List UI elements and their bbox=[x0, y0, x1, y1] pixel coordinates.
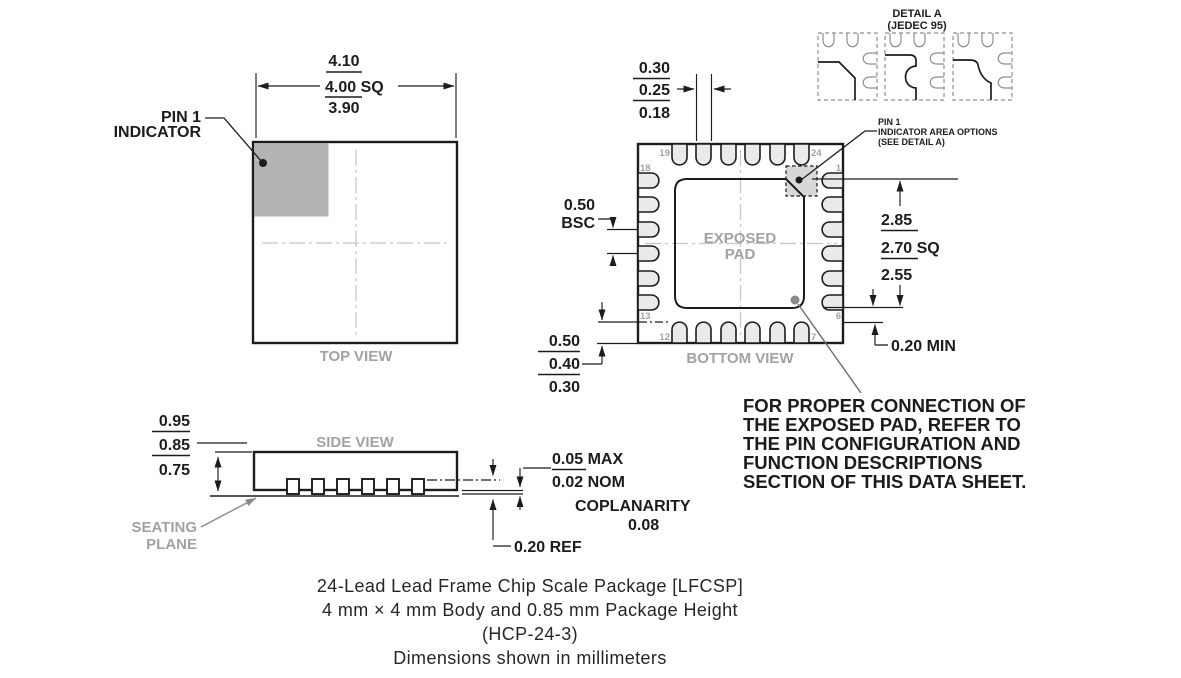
body-dim-min: 3.90 bbox=[328, 100, 359, 117]
pad-dim-min: 2.55 bbox=[881, 267, 912, 284]
bottom-view: EXPOSED PAD 19 24 18 1 13 6 12 7 BOTTOM … bbox=[538, 60, 998, 396]
lead-outline bbox=[958, 33, 969, 47]
detail-a-option-3 bbox=[953, 33, 1012, 100]
pad-dim-nom: 2.70 SQ bbox=[881, 240, 940, 257]
chamfer-corner-option bbox=[818, 62, 855, 100]
detail-a: DETAIL A (JEDEC 95) bbox=[818, 8, 1012, 100]
height-dimension: 0.95 0.85 0.75 bbox=[152, 413, 252, 491]
side-view: SIDE VIEW 0.95 0.85 0.75 SEATI bbox=[131, 413, 690, 556]
height-max: 0.95 bbox=[159, 413, 190, 430]
side-view-label: SIDE VIEW bbox=[316, 434, 394, 451]
lead-outline bbox=[914, 33, 925, 47]
pitch-dimension: 0.50 BSC bbox=[561, 197, 637, 266]
pin-number-19: 19 bbox=[659, 148, 670, 159]
note-line1: FOR PROPER CONNECTION OF bbox=[743, 395, 1026, 416]
lead-length-min: 0.30 bbox=[549, 379, 580, 396]
pin1-area-note-line2: INDICATOR AREA OPTIONS bbox=[878, 127, 998, 137]
exposed-pad-note: FOR PROPER CONNECTION OF THE EXPOSED PAD… bbox=[743, 395, 1026, 492]
caption: 24-Lead Lead Frame Chip Scale Package [L… bbox=[317, 576, 743, 668]
pin-number-13: 13 bbox=[640, 311, 651, 322]
detail-a-option-2 bbox=[885, 33, 944, 100]
pin-number-7: 7 bbox=[811, 332, 816, 343]
lead-outline bbox=[847, 33, 858, 47]
note-line3: THE PIN CONFIGURATION AND bbox=[743, 433, 1021, 454]
pin1-area-note-line3: (SEE DETAIL A) bbox=[878, 137, 945, 147]
pin-number-6: 6 bbox=[836, 311, 841, 322]
pin1-indicator-area bbox=[255, 144, 329, 217]
lead-outline bbox=[823, 33, 834, 47]
side-view-leads bbox=[287, 479, 424, 494]
exposed-pad-label-line2: PAD bbox=[725, 246, 756, 263]
pin1-area-note-line1: PIN 1 bbox=[878, 117, 901, 127]
detail-a-title: DETAIL A bbox=[892, 8, 941, 20]
side-view-body bbox=[254, 452, 457, 490]
note-line4: FUNCTION DESCRIPTIONS bbox=[743, 452, 982, 473]
caption-line3: (HCP-24-3) bbox=[482, 624, 578, 644]
note-leader-line bbox=[798, 304, 861, 393]
lead-outline bbox=[982, 33, 993, 47]
leads-right bbox=[822, 173, 843, 310]
pad-dim-max: 2.85 bbox=[881, 212, 912, 229]
detail-a-subtitle: (JEDEC 95) bbox=[887, 20, 947, 32]
caption-line4: Dimensions shown in millimeters bbox=[393, 648, 666, 668]
pin-number-18: 18 bbox=[640, 163, 651, 174]
lead-outline bbox=[998, 77, 1012, 88]
standoff-max: 0.05 MAX bbox=[552, 451, 623, 468]
lead-outline bbox=[998, 53, 1012, 64]
pitch-value: 0.50 bbox=[564, 197, 595, 214]
lead-outline bbox=[930, 53, 944, 64]
detail-a-option-1 bbox=[818, 33, 877, 100]
lead-width-max: 0.30 bbox=[639, 60, 670, 77]
exposed-pad-label-line1: EXPOSED bbox=[704, 230, 777, 247]
package-drawing: PIN 1 INDICATOR 4.10 4.00 SQ 3.90 TOP VI… bbox=[0, 0, 1181, 678]
top-view: PIN 1 INDICATOR 4.10 4.00 SQ 3.90 TOP VI… bbox=[114, 53, 457, 365]
coplanarity-label: COPLANARITY bbox=[575, 498, 691, 515]
lead-outline bbox=[863, 77, 877, 88]
lead-width-min: 0.18 bbox=[639, 105, 670, 122]
seating-plane-callout: SEATING PLANE bbox=[131, 498, 256, 553]
pad-clearance-value: 0.20 MIN bbox=[891, 338, 956, 355]
caption-line2: 4 mm × 4 mm Body and 0.85 mm Package Hei… bbox=[322, 600, 738, 620]
lfcsp-package-drawing-page: PIN 1 INDICATOR 4.10 4.00 SQ 3.90 TOP VI… bbox=[0, 0, 1181, 678]
note-line5: SECTION OF THIS DATA SHEET. bbox=[743, 471, 1026, 492]
pitch-suffix: BSC bbox=[561, 215, 595, 232]
notch-corner-option bbox=[885, 55, 916, 100]
pin-number-24: 24 bbox=[811, 148, 822, 159]
height-nom: 0.85 bbox=[159, 437, 190, 454]
coplanarity-value: 0.08 bbox=[628, 517, 659, 534]
lead-thickness-dimension: 0.20 REF bbox=[493, 500, 582, 557]
exposed-pad-note-dot bbox=[791, 296, 800, 305]
leads-left bbox=[638, 173, 659, 310]
pin-number-1: 1 bbox=[836, 163, 842, 174]
note-line2: THE EXPOSED PAD, REFER TO bbox=[743, 414, 1021, 435]
body-dim-max: 4.10 bbox=[328, 53, 359, 70]
pad-clearance-dimension: 0.20 MIN bbox=[843, 323, 956, 356]
curved-corner-option bbox=[953, 60, 991, 100]
seating-plane-line2: PLANE bbox=[146, 536, 197, 553]
lead-width-dimension: 0.30 0.25 0.18 bbox=[633, 60, 731, 141]
pin-number-12: 12 bbox=[659, 332, 670, 343]
lead-length-dimension: 0.50 0.40 0.30 bbox=[538, 302, 671, 396]
caption-line1: 24-Lead Lead Frame Chip Scale Package [L… bbox=[317, 576, 743, 596]
height-min: 0.75 bbox=[159, 462, 190, 479]
lead-thickness-value: 0.20 REF bbox=[514, 539, 582, 556]
bottom-view-label: BOTTOM VIEW bbox=[686, 350, 794, 367]
lead-length-nom: 0.40 bbox=[549, 356, 580, 373]
lead-outline bbox=[930, 77, 944, 88]
pin1-area-note: PIN 1 INDICATOR AREA OPTIONS (SEE DETAIL… bbox=[801, 117, 998, 180]
lead-length-max: 0.50 bbox=[549, 333, 580, 350]
lead-outline bbox=[863, 53, 877, 64]
pin1-callout-line2: INDICATOR bbox=[114, 124, 202, 141]
lead-outline bbox=[890, 33, 901, 47]
body-dim-nom: 4.00 SQ bbox=[325, 79, 384, 96]
seating-plane-line1: SEATING bbox=[131, 519, 197, 536]
lead-width-nom: 0.25 bbox=[639, 82, 670, 99]
standoff-nom: 0.02 NOM bbox=[552, 474, 625, 491]
top-view-label: TOP VIEW bbox=[320, 348, 394, 365]
leader-arrow bbox=[201, 498, 256, 527]
